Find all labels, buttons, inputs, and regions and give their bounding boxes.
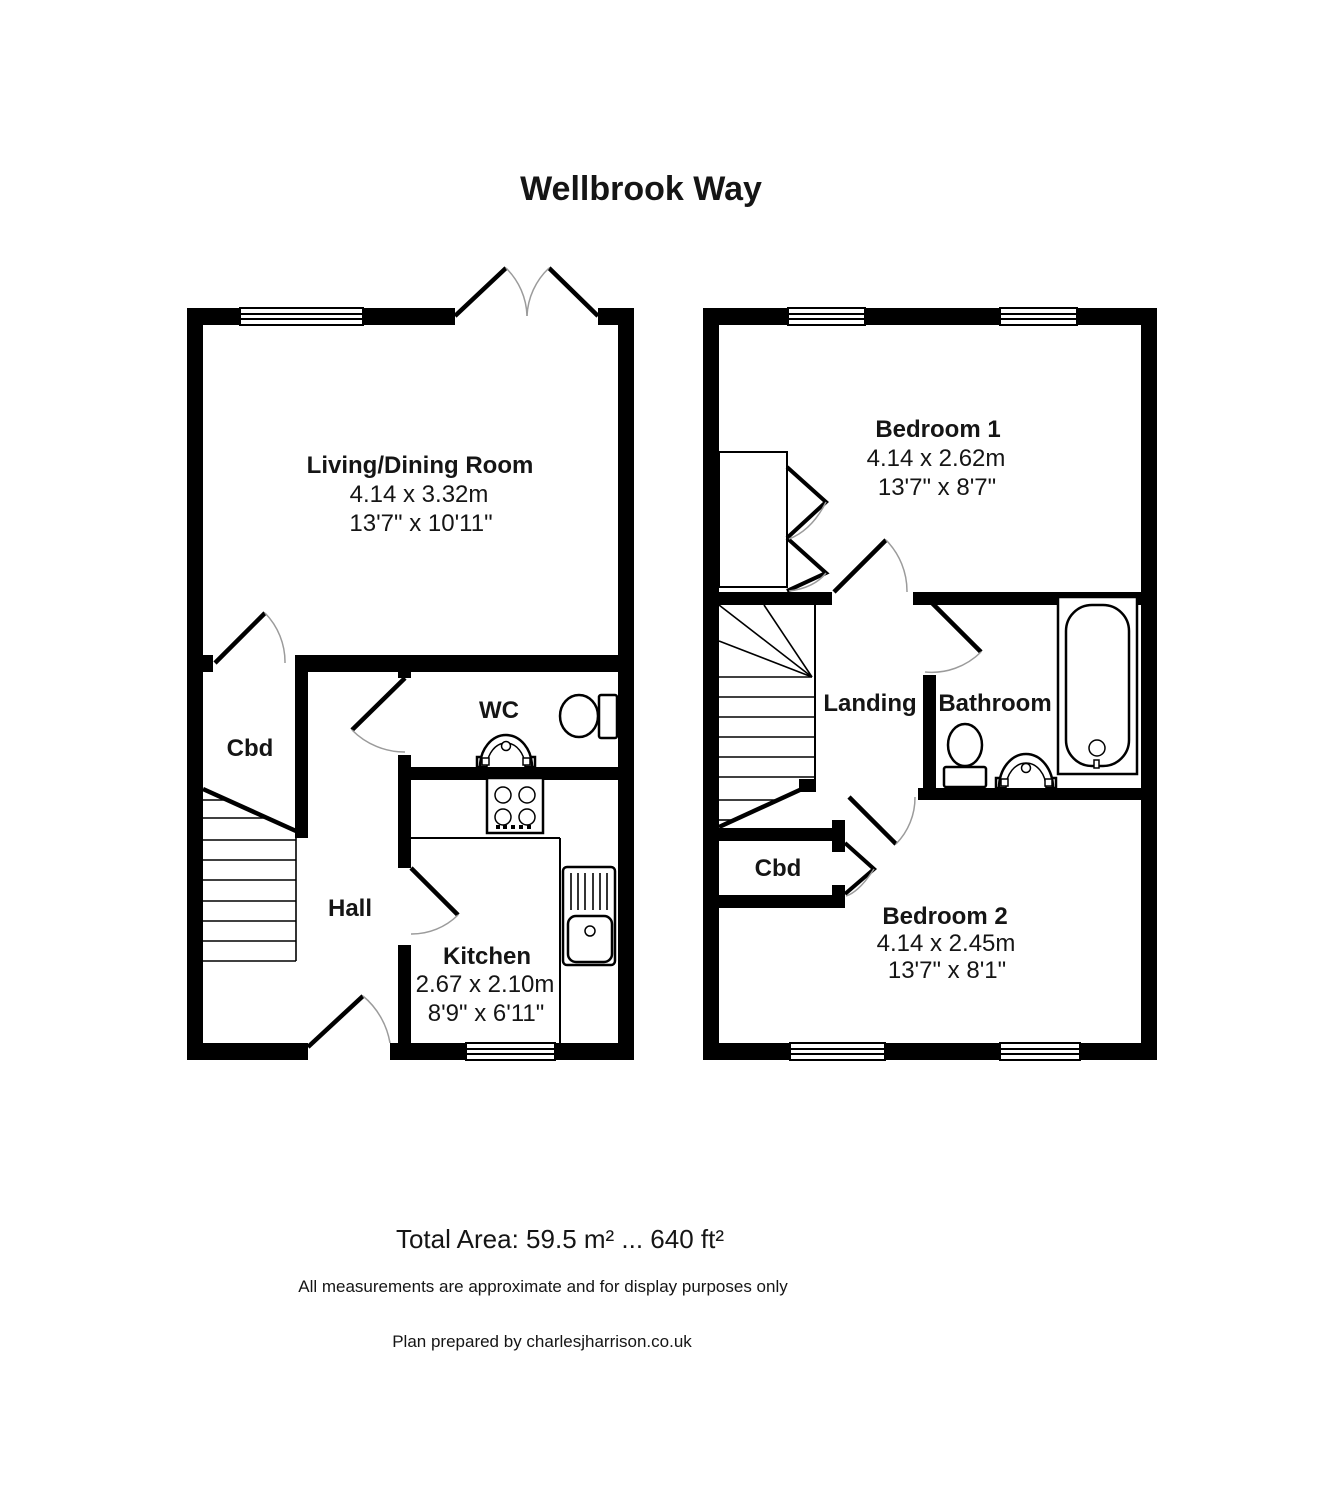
ff-cupboard-door — [845, 843, 874, 896]
bedroom2-metric: 4.14 x 2.45m — [877, 930, 1016, 957]
kitchen-sink-icon — [563, 867, 615, 965]
ff-cupboard-label: Cbd — [755, 855, 802, 882]
ff-window-bedroom2-left — [790, 1043, 885, 1060]
hall-label: Hall — [328, 895, 372, 922]
bedroom1-label: Bedroom 1 — [875, 416, 1000, 443]
footer: Total Area: 59.5 m² ... 640 ft² All meas… — [298, 1224, 788, 1351]
kitchen-door — [411, 868, 458, 934]
kitchen-metric: 2.67 x 2.10m — [416, 971, 555, 998]
floorplan-page: Wellbrook Way — [0, 0, 1340, 1489]
kitchen-imperial: 8'9" x 6'11" — [428, 1000, 545, 1027]
first-floor-plan: Bedroom 1 4.14 x 2.62m 13'7" x 8'7" Land… — [703, 308, 1157, 1060]
hob-icon — [487, 778, 543, 833]
cupboard-door — [215, 613, 285, 663]
entrance-door — [308, 996, 390, 1047]
bathroom-door — [925, 602, 981, 672]
ff-stairs — [719, 605, 815, 827]
ff-window-bedroom1-right — [1000, 308, 1077, 325]
wardrobe — [719, 452, 826, 591]
gf-cupboard-label: Cbd — [227, 735, 274, 762]
landing-label: Landing — [823, 690, 916, 717]
credit-text: Plan prepared by charlesjharrison.co.uk — [392, 1332, 692, 1351]
gf-window-kitchen — [466, 1043, 555, 1060]
gf-stairs — [203, 789, 296, 961]
living-room-label: Living/Dining Room — [307, 452, 534, 479]
disclaimer-text: All measurements are approximate and for… — [298, 1277, 788, 1296]
french-doors — [455, 268, 598, 316]
ground-floor-plan: Living/Dining Room 4.14 x 3.32m 13'7" x … — [187, 268, 634, 1060]
total-area-text: Total Area: 59.5 m² ... 640 ft² — [396, 1224, 724, 1254]
ff-window-bedroom1-left — [788, 308, 865, 325]
kitchen-label: Kitchen — [443, 943, 531, 970]
page-title: Wellbrook Way — [520, 170, 762, 208]
bedroom1-door — [834, 540, 907, 592]
wc-door — [352, 678, 405, 752]
bedroom2-label: Bedroom 2 — [882, 903, 1007, 930]
bedroom2-door — [849, 797, 915, 844]
bath-icon — [1058, 597, 1137, 774]
floorplan-canvas: Wellbrook Way — [0, 0, 1340, 1489]
bedroom1-metric: 4.14 x 2.62m — [867, 445, 1006, 472]
ff-window-bedroom2-right — [1000, 1043, 1080, 1060]
wc-basin-icon — [477, 735, 535, 767]
wc-toilet-icon — [560, 695, 617, 738]
bathroom-toilet-icon — [944, 724, 986, 787]
living-room-imperial: 13'7" x 10'11" — [349, 510, 492, 537]
gf-window-living — [240, 308, 363, 325]
wc-label: WC — [479, 697, 519, 724]
bedroom2-imperial: 13'7" x 8'1" — [888, 957, 1006, 984]
bathroom-basin-icon — [996, 754, 1056, 788]
bedroom1-imperial: 13'7" x 8'7" — [878, 474, 996, 501]
living-room-metric: 4.14 x 3.32m — [350, 481, 489, 508]
bathroom-label: Bathroom — [938, 690, 1051, 717]
